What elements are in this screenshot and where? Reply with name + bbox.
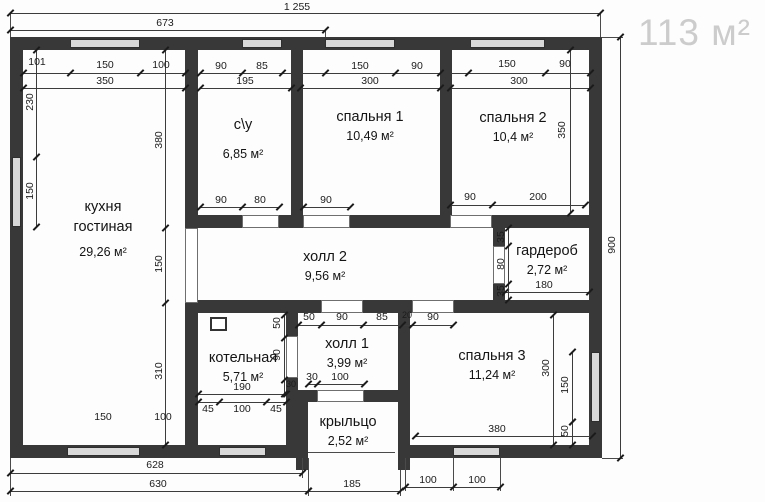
dimension-line (308, 491, 400, 492)
dim-label: 35 (495, 285, 507, 297)
door-opening (286, 336, 298, 378)
window (219, 447, 266, 456)
wall (398, 313, 410, 470)
room-name: холл 2 (303, 247, 347, 267)
dim-label: 195 (236, 75, 254, 87)
dim-label: 90 (320, 194, 332, 206)
dim-tick (33, 223, 41, 231)
dim-label: 150 (559, 376, 571, 394)
wall (291, 50, 303, 228)
dimension-line (450, 88, 590, 89)
dimension-line (572, 352, 573, 422)
dim-label: 50 (559, 425, 571, 437)
room-area: 2,72 м² (516, 261, 578, 279)
window (325, 39, 395, 48)
dim-label: 100 (468, 474, 486, 486)
dim-label: 30 (306, 371, 318, 383)
dim-label: 1 255 (284, 1, 310, 13)
dimension-line (23, 88, 185, 89)
dim-label: 200 (529, 191, 547, 203)
dimension-line (10, 491, 308, 492)
room-name: гостиная (74, 217, 133, 237)
dim-label: 350 (556, 121, 568, 139)
dimension-line (23, 73, 185, 74)
dim-label: 150 (94, 411, 112, 423)
room-label: холл 29,56 м² (303, 247, 347, 285)
room-name: спальня 2 (479, 108, 546, 128)
room-name: холл 1 (325, 334, 369, 354)
dim-label: 100 (419, 474, 437, 486)
total-area-badge: 113 м² (638, 12, 751, 54)
dim-tick (276, 203, 284, 211)
dim-label: 90 (427, 311, 439, 323)
dim-label: 350 (96, 75, 114, 87)
dim-label: 90 (336, 311, 348, 323)
room-name: гардероб (516, 241, 578, 261)
dim-tick (617, 454, 625, 462)
dim-label: 180 (535, 279, 553, 291)
dim-label: 900 (606, 236, 618, 254)
room-area: 9,56 м² (303, 267, 347, 285)
room-name: котельная (209, 348, 277, 368)
room-label: спальня 311,24 м² (458, 346, 525, 384)
dimension-line (284, 315, 285, 394)
dimension-line (450, 205, 585, 206)
dim-label: 45 (270, 403, 282, 415)
dim-label: 20 (402, 310, 412, 320)
dim-label: 45 (202, 403, 214, 415)
dim-label: 80 (254, 194, 266, 206)
dim-label: 90 (464, 191, 476, 203)
dim-label: 30 (286, 379, 296, 389)
dim-label: 300 (510, 75, 528, 87)
dimension-line (508, 228, 509, 300)
dim-label: 100 (331, 371, 349, 383)
room-name: спальня 3 (458, 346, 525, 366)
dimension-line (165, 50, 166, 445)
dimension-line (300, 73, 440, 74)
dim-label: 230 (24, 93, 36, 111)
room-name: с\у (223, 115, 264, 135)
dim-label: 185 (343, 478, 361, 490)
dim-label: 150 (153, 255, 165, 273)
dim-label: 90 (215, 60, 227, 72)
dim-label: 90 (215, 194, 227, 206)
dim-label: 50 (303, 311, 315, 323)
wall (185, 300, 602, 313)
dimension-line (200, 88, 291, 89)
door-opening (303, 215, 350, 228)
dim-label: 85 (376, 311, 388, 323)
dim-label: 150 (24, 182, 36, 200)
dim-label: 35 (495, 231, 507, 243)
dim-tick (450, 321, 458, 329)
dim-label: 150 (96, 59, 114, 71)
room-name: крыльцо (319, 412, 376, 432)
dimension-line (620, 37, 621, 458)
boiler-symbol (210, 317, 227, 331)
dim-label: 90 (559, 58, 571, 70)
room-area: 11,24 м² (458, 366, 525, 384)
door-opening (450, 215, 492, 228)
dim-label: 100 (233, 403, 251, 415)
dim-label: 50 (271, 317, 283, 329)
dim-label: 630 (149, 478, 167, 490)
window (453, 447, 500, 456)
dim-label: 673 (156, 17, 174, 29)
dimension-line (505, 292, 589, 293)
room-label: спальня 110,49 м² (336, 107, 403, 145)
floor-plan: 113 м² 1 2556731011501003509085195150903… (0, 0, 765, 502)
window (591, 352, 600, 422)
room-area: 5,71 м² (209, 368, 277, 386)
room-label: холл 13,99 м² (325, 334, 369, 372)
dim-label: 80 (495, 258, 507, 270)
dimension-line (10, 13, 600, 14)
room-label: с\у6,85 м² (223, 115, 264, 163)
dim-label: 380 (488, 423, 506, 435)
dim-label: 628 (146, 459, 164, 471)
extension-line (302, 458, 303, 478)
room-area: 3,99 м² (325, 354, 369, 372)
extension-line (600, 13, 601, 37)
dimension-line (570, 50, 571, 213)
dimension-line (450, 73, 590, 74)
dim-label: 90 (411, 60, 423, 72)
dimension-line (10, 473, 302, 474)
door-opening (242, 215, 279, 228)
dim-tick (347, 203, 355, 211)
window (470, 39, 545, 48)
dimension-line (303, 207, 350, 208)
dim-label: 380 (153, 131, 165, 149)
dim-label: 100 (152, 59, 170, 71)
dim-label: 150 (498, 58, 516, 70)
window (70, 39, 140, 48)
room-area: 10,49 м² (336, 127, 403, 145)
dim-label: 101 (28, 56, 46, 68)
dim-tick (361, 380, 369, 388)
room-area: 10,4 м² (479, 128, 546, 146)
room-label: спальня 210,4 м² (479, 108, 546, 146)
window (12, 157, 21, 227)
extension-line (308, 452, 395, 453)
room-label: крыльцо2,52 м² (319, 412, 376, 450)
room-name: спальня 1 (336, 107, 403, 127)
extension-line (10, 13, 11, 37)
dimension-line (198, 394, 286, 395)
room-label: котельная5,71 м² (209, 348, 277, 386)
room-area: 6,85 м² (223, 145, 264, 163)
dimension-line (300, 88, 440, 89)
door-opening (317, 390, 364, 402)
room-name: кухня (74, 197, 133, 217)
dimension-line (200, 73, 291, 74)
door-opening (185, 228, 198, 303)
room-label: гардероб2,72 м² (516, 241, 578, 279)
dimension-line (553, 315, 554, 445)
window (67, 447, 140, 456)
dim-label: 300 (361, 75, 379, 87)
wall (10, 37, 23, 458)
room-label: кухнягостиная29,26 м² (74, 197, 133, 261)
dimension-line (10, 30, 325, 31)
room-area: 29,26 м² (74, 243, 133, 261)
dim-label: 300 (540, 359, 552, 377)
dimension-line (36, 50, 37, 227)
window (242, 39, 282, 48)
room-area: 2,52 м² (319, 432, 376, 450)
wall (440, 50, 452, 228)
dim-label: 310 (153, 362, 165, 380)
dim-label: 150 (351, 60, 369, 72)
dim-label: 100 (154, 411, 172, 423)
dim-label: 85 (256, 60, 268, 72)
